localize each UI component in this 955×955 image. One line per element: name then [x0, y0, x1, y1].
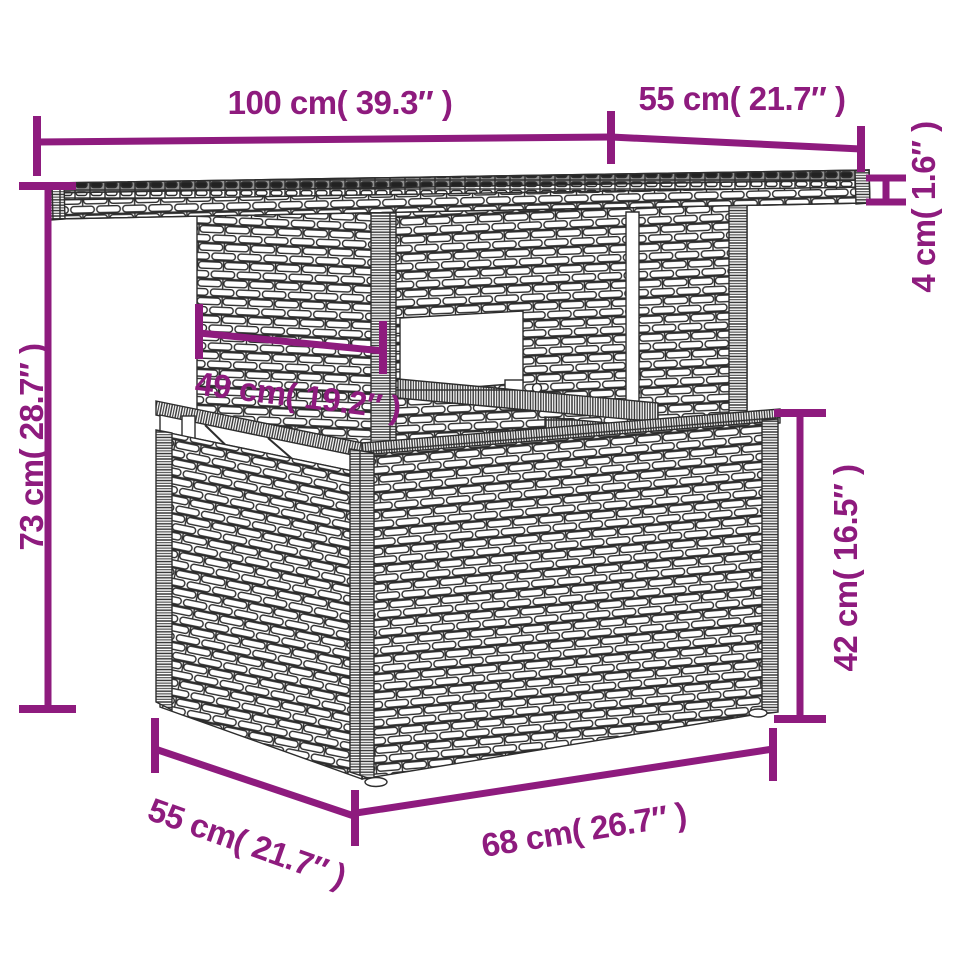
pedestal-right-edge-column: [729, 205, 747, 416]
table-line-art: [0, 0, 955, 955]
dimension-label-top-thickness: 4 cm( 1.6″ ): [905, 121, 943, 292]
dimension-line-top-depth: [611, 126, 861, 172]
base-left-face: [160, 431, 362, 779]
base-foot-right: [749, 709, 767, 717]
dimension-diagram: 100 cm( 39.3″ ) 55 cm( 21.7″ ) 4 cm( 1.6…: [0, 0, 955, 955]
dimension-label-total-height: 73 cm( 28.7″ ): [13, 344, 51, 551]
base-foot-front: [365, 778, 387, 787]
dimension-bracket-top-thickness: [866, 178, 906, 202]
dimension-line-base-height: [774, 413, 826, 719]
base-right-edge-column: [762, 419, 778, 714]
base-right-face: [362, 421, 777, 779]
base-box: [156, 401, 780, 787]
dimension-label-base-height: 42 cm( 16.5″ ): [827, 465, 865, 672]
pedestal-slot-opening: [626, 212, 639, 414]
base-left-edge-column: [156, 430, 172, 710]
dimension-label-top-width: 100 cm( 39.3″ ): [228, 84, 453, 122]
dimension-label-top-depth: 55 cm( 21.7″ ): [639, 80, 846, 118]
base-front-corner-column: [350, 449, 374, 780]
